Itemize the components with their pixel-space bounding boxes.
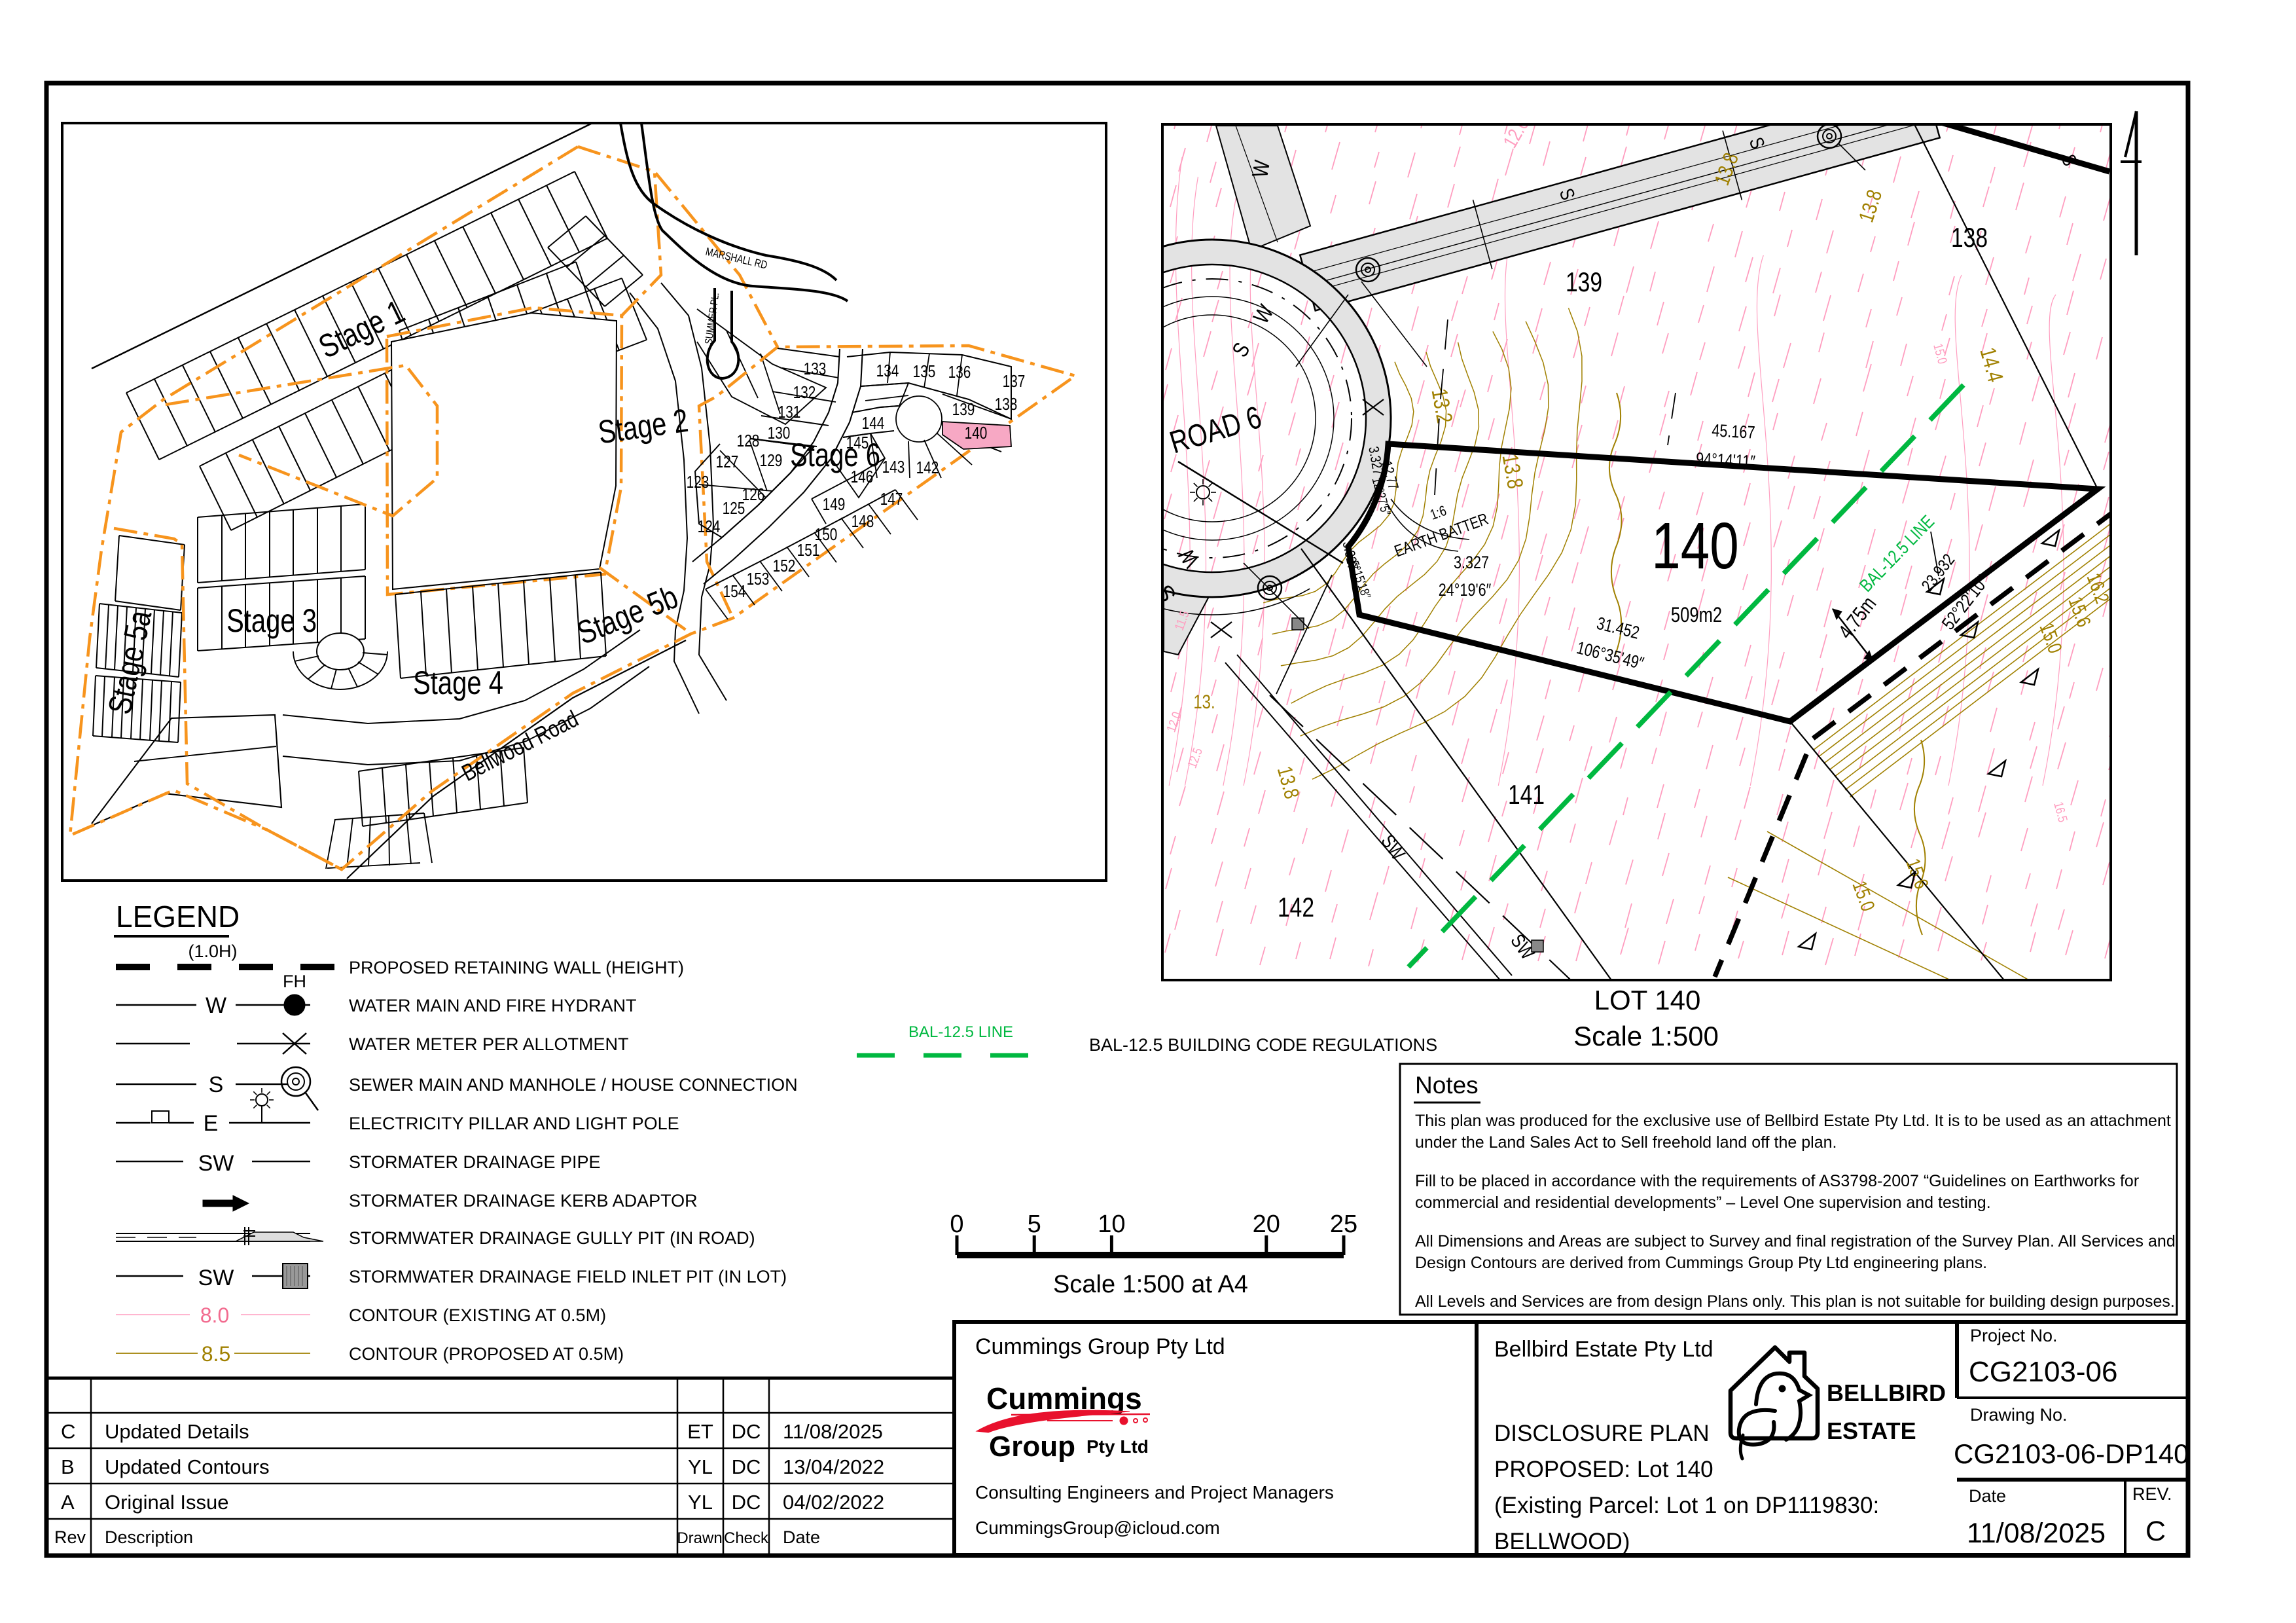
svg-text:Rev: Rev bbox=[54, 1527, 86, 1547]
svg-text:Stage 6: Stage 6 bbox=[790, 437, 880, 473]
svg-text:142: 142 bbox=[916, 458, 939, 477]
svg-text:138: 138 bbox=[1951, 223, 1988, 253]
svg-text:8.0: 8.0 bbox=[200, 1304, 229, 1327]
svg-text:BAL-12.5 LINE: BAL-12.5 LINE bbox=[908, 1023, 1013, 1041]
svg-text:11/08/2025: 11/08/2025 bbox=[1967, 1518, 2106, 1549]
svg-text:14.4: 14.4 bbox=[1975, 344, 2009, 384]
svg-text:STORMWATER DRAINAGE GULLY PIT: STORMWATER DRAINAGE GULLY PIT (IN ROAD) bbox=[349, 1228, 755, 1248]
svg-text:12.0: 12.0 bbox=[1164, 710, 1184, 734]
svg-text:Updated Details: Updated Details bbox=[105, 1420, 249, 1443]
svg-text:16.5: 16.5 bbox=[2051, 800, 2070, 824]
svg-text:STORMWATER DRAINAGE FIELD INLE: STORMWATER DRAINAGE FIELD INLET PIT (IN … bbox=[349, 1267, 787, 1286]
svg-text:Stage 5b: Stage 5b bbox=[572, 578, 683, 651]
svg-text:13.8: 13.8 bbox=[1272, 764, 1303, 801]
svg-text:Pty Ltd: Pty Ltd bbox=[1086, 1436, 1149, 1457]
svg-text:Cummings Group Pty Ltd: Cummings Group Pty Ltd bbox=[975, 1334, 1225, 1359]
svg-text:124: 124 bbox=[698, 517, 721, 536]
svg-text:Drawn: Drawn bbox=[677, 1529, 722, 1547]
svg-text:137: 137 bbox=[1003, 372, 1026, 391]
svg-text:128: 128 bbox=[737, 431, 760, 450]
svg-text:Scale 1:500: Scale 1:500 bbox=[1573, 1021, 1719, 1051]
svg-text:REV.: REV. bbox=[2132, 1484, 2172, 1504]
svg-text:13.8: 13.8 bbox=[1855, 187, 1887, 225]
svg-text:13/04/2022: 13/04/2022 bbox=[783, 1455, 884, 1478]
svg-text:Stage 5a: Stage 5a bbox=[101, 607, 159, 718]
svg-text:148: 148 bbox=[852, 512, 874, 531]
svg-text:Updated Contours: Updated Contours bbox=[105, 1455, 270, 1478]
svg-text:WATER MAIN AND FIRE HYDRANT: WATER MAIN AND FIRE HYDRANT bbox=[349, 996, 637, 1015]
svg-text:DC: DC bbox=[732, 1491, 761, 1514]
svg-text:SEWER MAIN AND MANHOLE / HOUSE: SEWER MAIN AND MANHOLE / HOUSE CONNECTIO… bbox=[349, 1075, 798, 1095]
svg-text:8.5: 8.5 bbox=[202, 1342, 230, 1366]
svg-text:126: 126 bbox=[742, 485, 765, 504]
svg-text:ROAD 6: ROAD 6 bbox=[1166, 400, 1265, 460]
svg-text:CONTOUR (EXISTING AT 0.5M): CONTOUR (EXISTING AT 0.5M) bbox=[349, 1305, 606, 1325]
svg-text:LOT 140: LOT 140 bbox=[1594, 985, 1701, 1015]
svg-text:140: 140 bbox=[965, 424, 988, 443]
svg-text:Description: Description bbox=[105, 1527, 193, 1547]
svg-text:MARSHALL RD: MARSHALL RD bbox=[704, 246, 768, 272]
svg-text:(Existing Parcel: Lot 1 on DP1: (Existing Parcel: Lot 1 on DP1119830: bbox=[1494, 1493, 1879, 1518]
svg-text:130: 130 bbox=[768, 424, 791, 443]
svg-text:CummingsGroup@icloud.com: CummingsGroup@icloud.com bbox=[975, 1518, 1220, 1538]
svg-text:LEGEND: LEGEND bbox=[116, 900, 240, 934]
svg-text:132: 132 bbox=[793, 383, 816, 402]
svg-text:13.2: 13.2 bbox=[1427, 387, 1458, 426]
svg-text:12.5: 12.5 bbox=[1185, 746, 1205, 770]
svg-text:24°19'6″: 24°19'6″ bbox=[1439, 581, 1492, 600]
svg-text:WATER METER PER ALLOTMENT: WATER METER PER ALLOTMENT bbox=[349, 1034, 629, 1054]
svg-text:140: 140 bbox=[1651, 510, 1738, 583]
svg-text:11/08/2025: 11/08/2025 bbox=[783, 1420, 883, 1443]
svg-text:commercial and residential dev: commercial and residential developments”… bbox=[1415, 1194, 1991, 1212]
svg-text:133: 133 bbox=[804, 359, 827, 378]
svg-text:PROPOSED RETAINING WALL (HEIGH: PROPOSED RETAINING WALL (HEIGHT) bbox=[349, 958, 684, 977]
svg-text:SW: SW bbox=[198, 1266, 234, 1290]
svg-text:12.6: 12.6 bbox=[1498, 114, 1533, 152]
svg-text:Cummings: Cummings bbox=[986, 1381, 1142, 1415]
svg-text:Bellbird Estate Pty Ltd: Bellbird Estate Pty Ltd bbox=[1494, 1337, 1713, 1362]
svg-text:5: 5 bbox=[1028, 1211, 1041, 1238]
svg-text:All Levels and Services are fr: All Levels and Services are from design … bbox=[1415, 1292, 2175, 1311]
svg-text:13.8: 13.8 bbox=[1498, 452, 1528, 491]
svg-text:Check: Check bbox=[724, 1529, 769, 1547]
svg-text:142: 142 bbox=[1278, 893, 1314, 923]
svg-text:149: 149 bbox=[823, 495, 846, 514]
svg-text:Date: Date bbox=[783, 1527, 820, 1547]
svg-text:Group: Group bbox=[989, 1431, 1075, 1463]
svg-text:CG2103-06: CG2103-06 bbox=[1969, 1356, 2117, 1388]
svg-text:04/02/2022: 04/02/2022 bbox=[783, 1491, 884, 1514]
svg-text:STORMATER DRAINAGE KERB ADAPTO: STORMATER DRAINAGE KERB ADAPTOR bbox=[349, 1191, 698, 1211]
svg-text:0: 0 bbox=[950, 1211, 963, 1238]
svg-text:125: 125 bbox=[723, 499, 745, 518]
svg-text:E: E bbox=[204, 1111, 219, 1136]
svg-text:DISCLOSURE PLAN: DISCLOSURE PLAN bbox=[1494, 1421, 1710, 1446]
svg-text:W: W bbox=[1248, 301, 1278, 328]
svg-text:139: 139 bbox=[952, 400, 975, 419]
svg-text:SW: SW bbox=[198, 1151, 234, 1176]
svg-text:Original Issue: Original Issue bbox=[105, 1491, 229, 1514]
svg-text:138: 138 bbox=[995, 395, 1018, 414]
svg-text:DC: DC bbox=[732, 1420, 761, 1443]
svg-text:4.75m: 4.75m bbox=[1834, 593, 1881, 644]
svg-text:S: S bbox=[209, 1072, 224, 1097]
svg-text:Notes: Notes bbox=[1415, 1072, 1479, 1099]
svg-text:Project No.: Project No. bbox=[1970, 1326, 2058, 1345]
svg-text:Stage 4: Stage 4 bbox=[413, 665, 503, 701]
svg-text:10: 10 bbox=[1098, 1211, 1125, 1238]
svg-text:139: 139 bbox=[1566, 268, 1602, 298]
svg-text:20: 20 bbox=[1253, 1211, 1280, 1238]
svg-text:15.0: 15.0 bbox=[1931, 342, 1950, 365]
svg-text:154: 154 bbox=[723, 582, 746, 601]
svg-text:25: 25 bbox=[1330, 1211, 1357, 1238]
svg-text:Design Contours are derived fr: Design Contours are derived from Cumming… bbox=[1415, 1254, 1987, 1272]
svg-text:All Dimensions and Areas are s: All Dimensions and Areas are subject to … bbox=[1415, 1232, 2176, 1250]
svg-text:153: 153 bbox=[747, 570, 770, 589]
svg-text:CONTOUR (PROPOSED AT 0.5M): CONTOUR (PROPOSED AT 0.5M) bbox=[349, 1344, 624, 1364]
svg-text:Stage 3: Stage 3 bbox=[226, 602, 317, 639]
svg-text:This plan was produced for the: This plan was produced for the exclusive… bbox=[1415, 1112, 2171, 1130]
svg-text:A: A bbox=[61, 1491, 75, 1514]
svg-text:94°14'11″: 94°14'11″ bbox=[1695, 449, 1756, 472]
svg-text:ESTATE: ESTATE bbox=[1827, 1417, 1916, 1444]
svg-text:129: 129 bbox=[760, 451, 783, 470]
svg-text:C: C bbox=[2145, 1516, 2166, 1547]
svg-text:147: 147 bbox=[880, 490, 903, 509]
svg-text:BELLWOOD): BELLWOOD) bbox=[1494, 1529, 1630, 1554]
svg-text:C: C bbox=[61, 1420, 75, 1443]
svg-text:Fill to be placed in accordanc: Fill to be placed in accordance with the… bbox=[1415, 1172, 2139, 1190]
svg-text:YL: YL bbox=[688, 1455, 713, 1478]
svg-text:141: 141 bbox=[1508, 780, 1545, 811]
svg-text:136: 136 bbox=[948, 363, 971, 382]
svg-text:YL: YL bbox=[688, 1491, 713, 1514]
svg-text:131: 131 bbox=[778, 403, 801, 422]
svg-text:143: 143 bbox=[882, 458, 905, 477]
svg-text:BELLBIRD: BELLBIRD bbox=[1827, 1379, 1946, 1406]
svg-text:Bellwood Road: Bellwood Road bbox=[457, 705, 583, 786]
svg-text:S: S bbox=[1227, 338, 1255, 361]
svg-text:151: 151 bbox=[797, 541, 820, 560]
svg-text:STORMATER DRAINAGE PIPE: STORMATER DRAINAGE PIPE bbox=[349, 1152, 601, 1172]
svg-text:(1.0H): (1.0H) bbox=[188, 941, 237, 961]
svg-text:SUMMER PL.: SUMMER PL. bbox=[703, 292, 722, 345]
svg-text:B: B bbox=[61, 1455, 75, 1478]
svg-text:3.327: 3.327 bbox=[1454, 553, 1489, 573]
svg-text:31.452: 31.452 bbox=[1594, 614, 1641, 644]
svg-text:under the Land Sales Act to Se: under the Land Sales Act to Sell freehol… bbox=[1415, 1133, 1837, 1152]
svg-text:509m2: 509m2 bbox=[1671, 604, 1722, 627]
svg-text:152: 152 bbox=[773, 556, 796, 575]
svg-text:135: 135 bbox=[913, 362, 936, 381]
svg-text:123: 123 bbox=[687, 473, 709, 492]
svg-text:15.0: 15.0 bbox=[1848, 878, 1880, 915]
svg-text:Date: Date bbox=[1969, 1486, 2006, 1506]
svg-text:1:6: 1:6 bbox=[1428, 503, 1448, 523]
svg-text:45.167: 45.167 bbox=[1712, 421, 1756, 443]
svg-text:W: W bbox=[206, 993, 226, 1018]
svg-text:ET: ET bbox=[687, 1420, 713, 1443]
svg-text:FH: FH bbox=[283, 972, 306, 991]
svg-text:Consulting Engineers and Proje: Consulting Engineers and Project Manager… bbox=[975, 1482, 1334, 1503]
svg-text:BAL-12.5 BUILDING CODE REGULAT: BAL-12.5 BUILDING CODE REGULATIONS bbox=[1089, 1035, 1437, 1055]
svg-text:Drawing No.: Drawing No. bbox=[1970, 1405, 2068, 1425]
svg-text:ELECTRICITY PILLAR AND LIGHT P: ELECTRICITY PILLAR AND LIGHT POLE bbox=[349, 1114, 679, 1133]
svg-text:144: 144 bbox=[862, 414, 885, 433]
svg-text:127: 127 bbox=[716, 452, 739, 471]
svg-text:13.: 13. bbox=[1193, 690, 1215, 712]
svg-text:PROPOSED: Lot 140: PROPOSED: Lot 140 bbox=[1494, 1457, 1713, 1482]
svg-text:SW: SW bbox=[1376, 830, 1409, 864]
svg-text:134: 134 bbox=[876, 361, 899, 380]
svg-text:DC: DC bbox=[732, 1455, 761, 1478]
svg-text:CG2103-06-DP140: CG2103-06-DP140 bbox=[1954, 1438, 2189, 1469]
svg-text:Scale 1:500 at A4: Scale 1:500 at A4 bbox=[1053, 1271, 1248, 1298]
